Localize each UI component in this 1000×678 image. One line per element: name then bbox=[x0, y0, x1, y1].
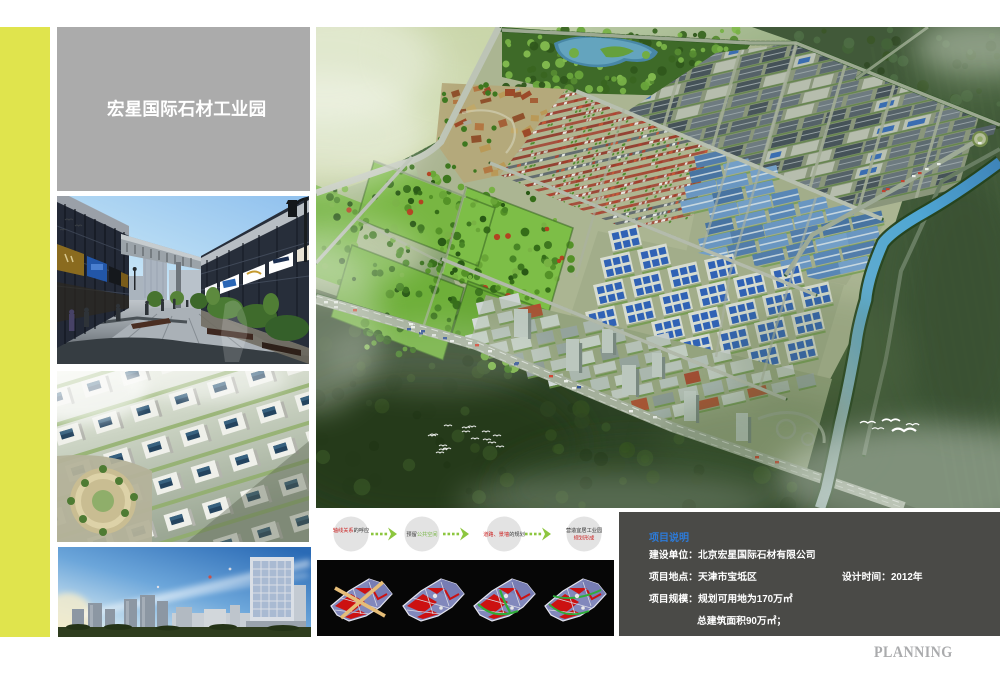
svg-text:道路、景墙的规划: 道路、景墙的规划 bbox=[483, 530, 525, 538]
svg-text:预留公共空间: 预留公共空间 bbox=[406, 530, 437, 538]
svg-text:营造宜居工业园: 营造宜居工业园 bbox=[566, 526, 602, 534]
svg-text:轴线关系的呼应: 轴线关系的呼应 bbox=[333, 526, 369, 534]
svg-text:规划形成: 规划形成 bbox=[574, 534, 595, 542]
